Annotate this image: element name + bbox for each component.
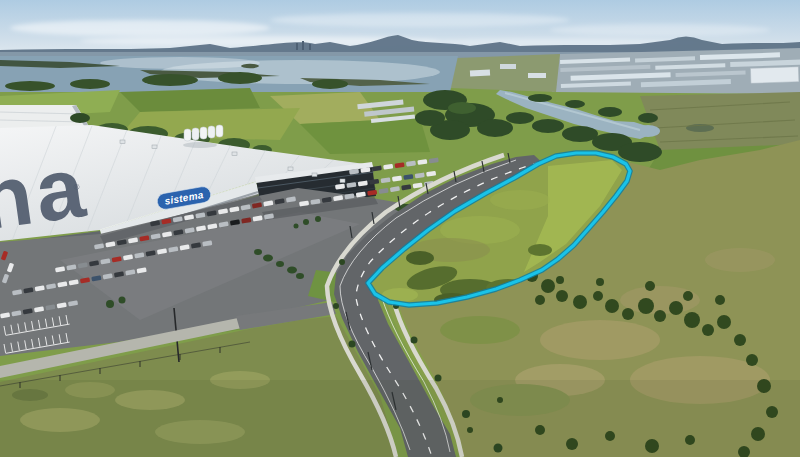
roof-text: na <box>0 138 94 248</box>
photo-grade <box>0 380 800 457</box>
roof-branding: na <box>0 138 94 248</box>
aerial-photo: na ® sistema <box>0 0 800 457</box>
